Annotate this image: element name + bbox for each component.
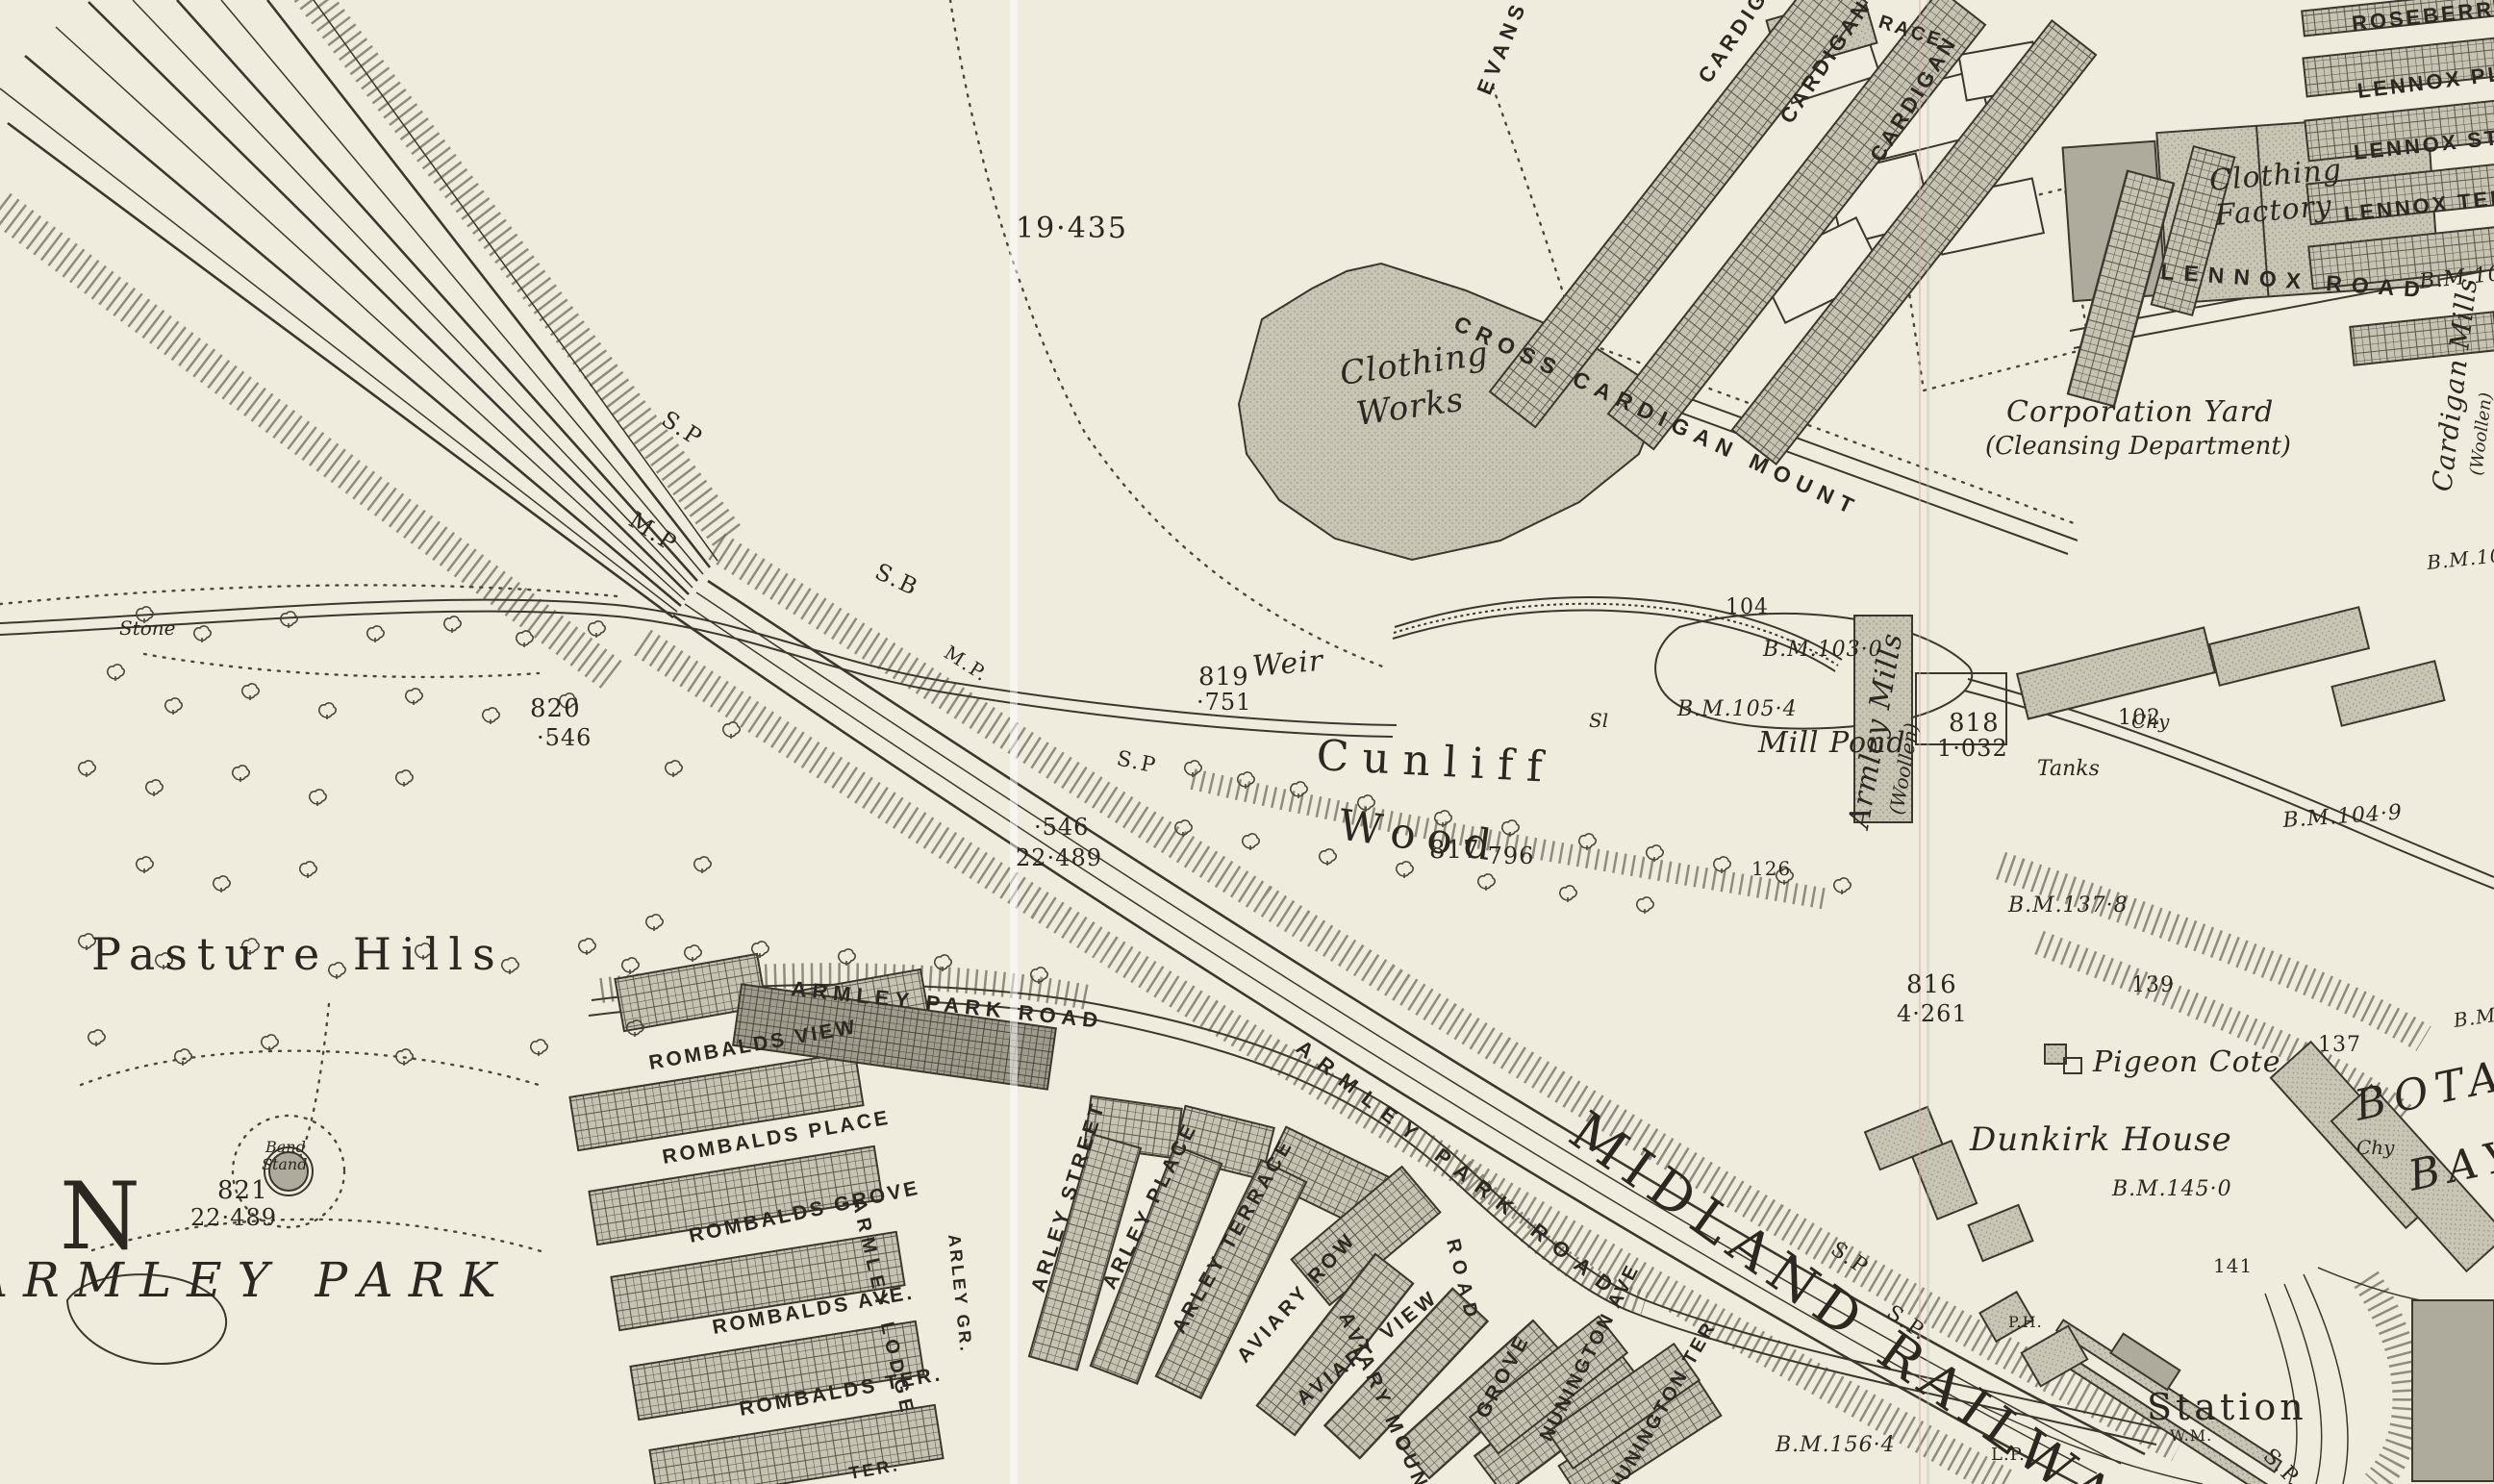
map-label: ·751 (1197, 689, 1251, 716)
map-label: 22·489 (1016, 844, 1102, 871)
map-label: 137 (2318, 1033, 2361, 1057)
map-label: 1·032 (1937, 735, 2008, 762)
map-label: Stand (262, 1155, 307, 1173)
map-label: Weir (1251, 644, 1326, 684)
map-label: 821 (217, 1176, 268, 1205)
map-label: ·796 (1479, 843, 1534, 869)
map-label: Stone (119, 616, 176, 640)
map-label: 139 (2131, 973, 2175, 997)
map-label: N (60, 1163, 140, 1270)
map-label: 816 (1906, 970, 1957, 999)
map-label: 817 (1429, 836, 1480, 865)
map-label: P.H. (2008, 1313, 2043, 1331)
map-label: B.M.145·0 (2111, 1177, 2232, 1201)
map-label: (Cleansing Department) (1985, 432, 2291, 461)
map-label: W.M. (2170, 1426, 2212, 1445)
map-label: Corporation Yard (2006, 395, 2274, 429)
map-label: 19·435 (1016, 212, 1128, 245)
map-label: 818 (1949, 709, 2000, 738)
map-label: Band (265, 1138, 306, 1156)
map-label: Pasture Hills (91, 928, 505, 980)
map-label: Tanks (2037, 757, 2100, 781)
map-label: Station (2147, 1386, 2307, 1428)
map-label: 126 (1751, 857, 1791, 880)
map-canvas: Pasture HillsARMLEY PARKNMIDLAND RAILWAY… (0, 0, 2494, 1484)
map-label: 819 (1198, 663, 1249, 692)
map-label: 4·261 (1897, 1000, 1968, 1027)
map-label: 102 (2118, 706, 2161, 730)
map-label: 104 (1726, 595, 1769, 619)
map-label: ·546 (1034, 814, 1089, 841)
map-label: Dunkirk House (1969, 1120, 2232, 1159)
map-label: B.M.156·4 (1775, 1433, 1896, 1457)
map-label: Pigeon Cote (2092, 1045, 2280, 1079)
map-label: ·546 (537, 724, 592, 751)
map-label: L.P. (1991, 1445, 2026, 1465)
map-label: 820 (530, 694, 581, 723)
map-screenshot: Pasture HillsARMLEY PARKNMIDLAND RAILWAY… (0, 0, 2494, 1484)
map-label: Sl (1589, 709, 1608, 732)
map-label: B.M.137·8 (2007, 893, 2129, 918)
map-label: 141 (2213, 1254, 2253, 1277)
map-label: 22·489 (190, 1204, 277, 1231)
map-label: B.M.103·0 (1762, 638, 1883, 662)
map-label: B.M.105·4 (1676, 697, 1798, 721)
map-label: Chy (2356, 1136, 2395, 1159)
